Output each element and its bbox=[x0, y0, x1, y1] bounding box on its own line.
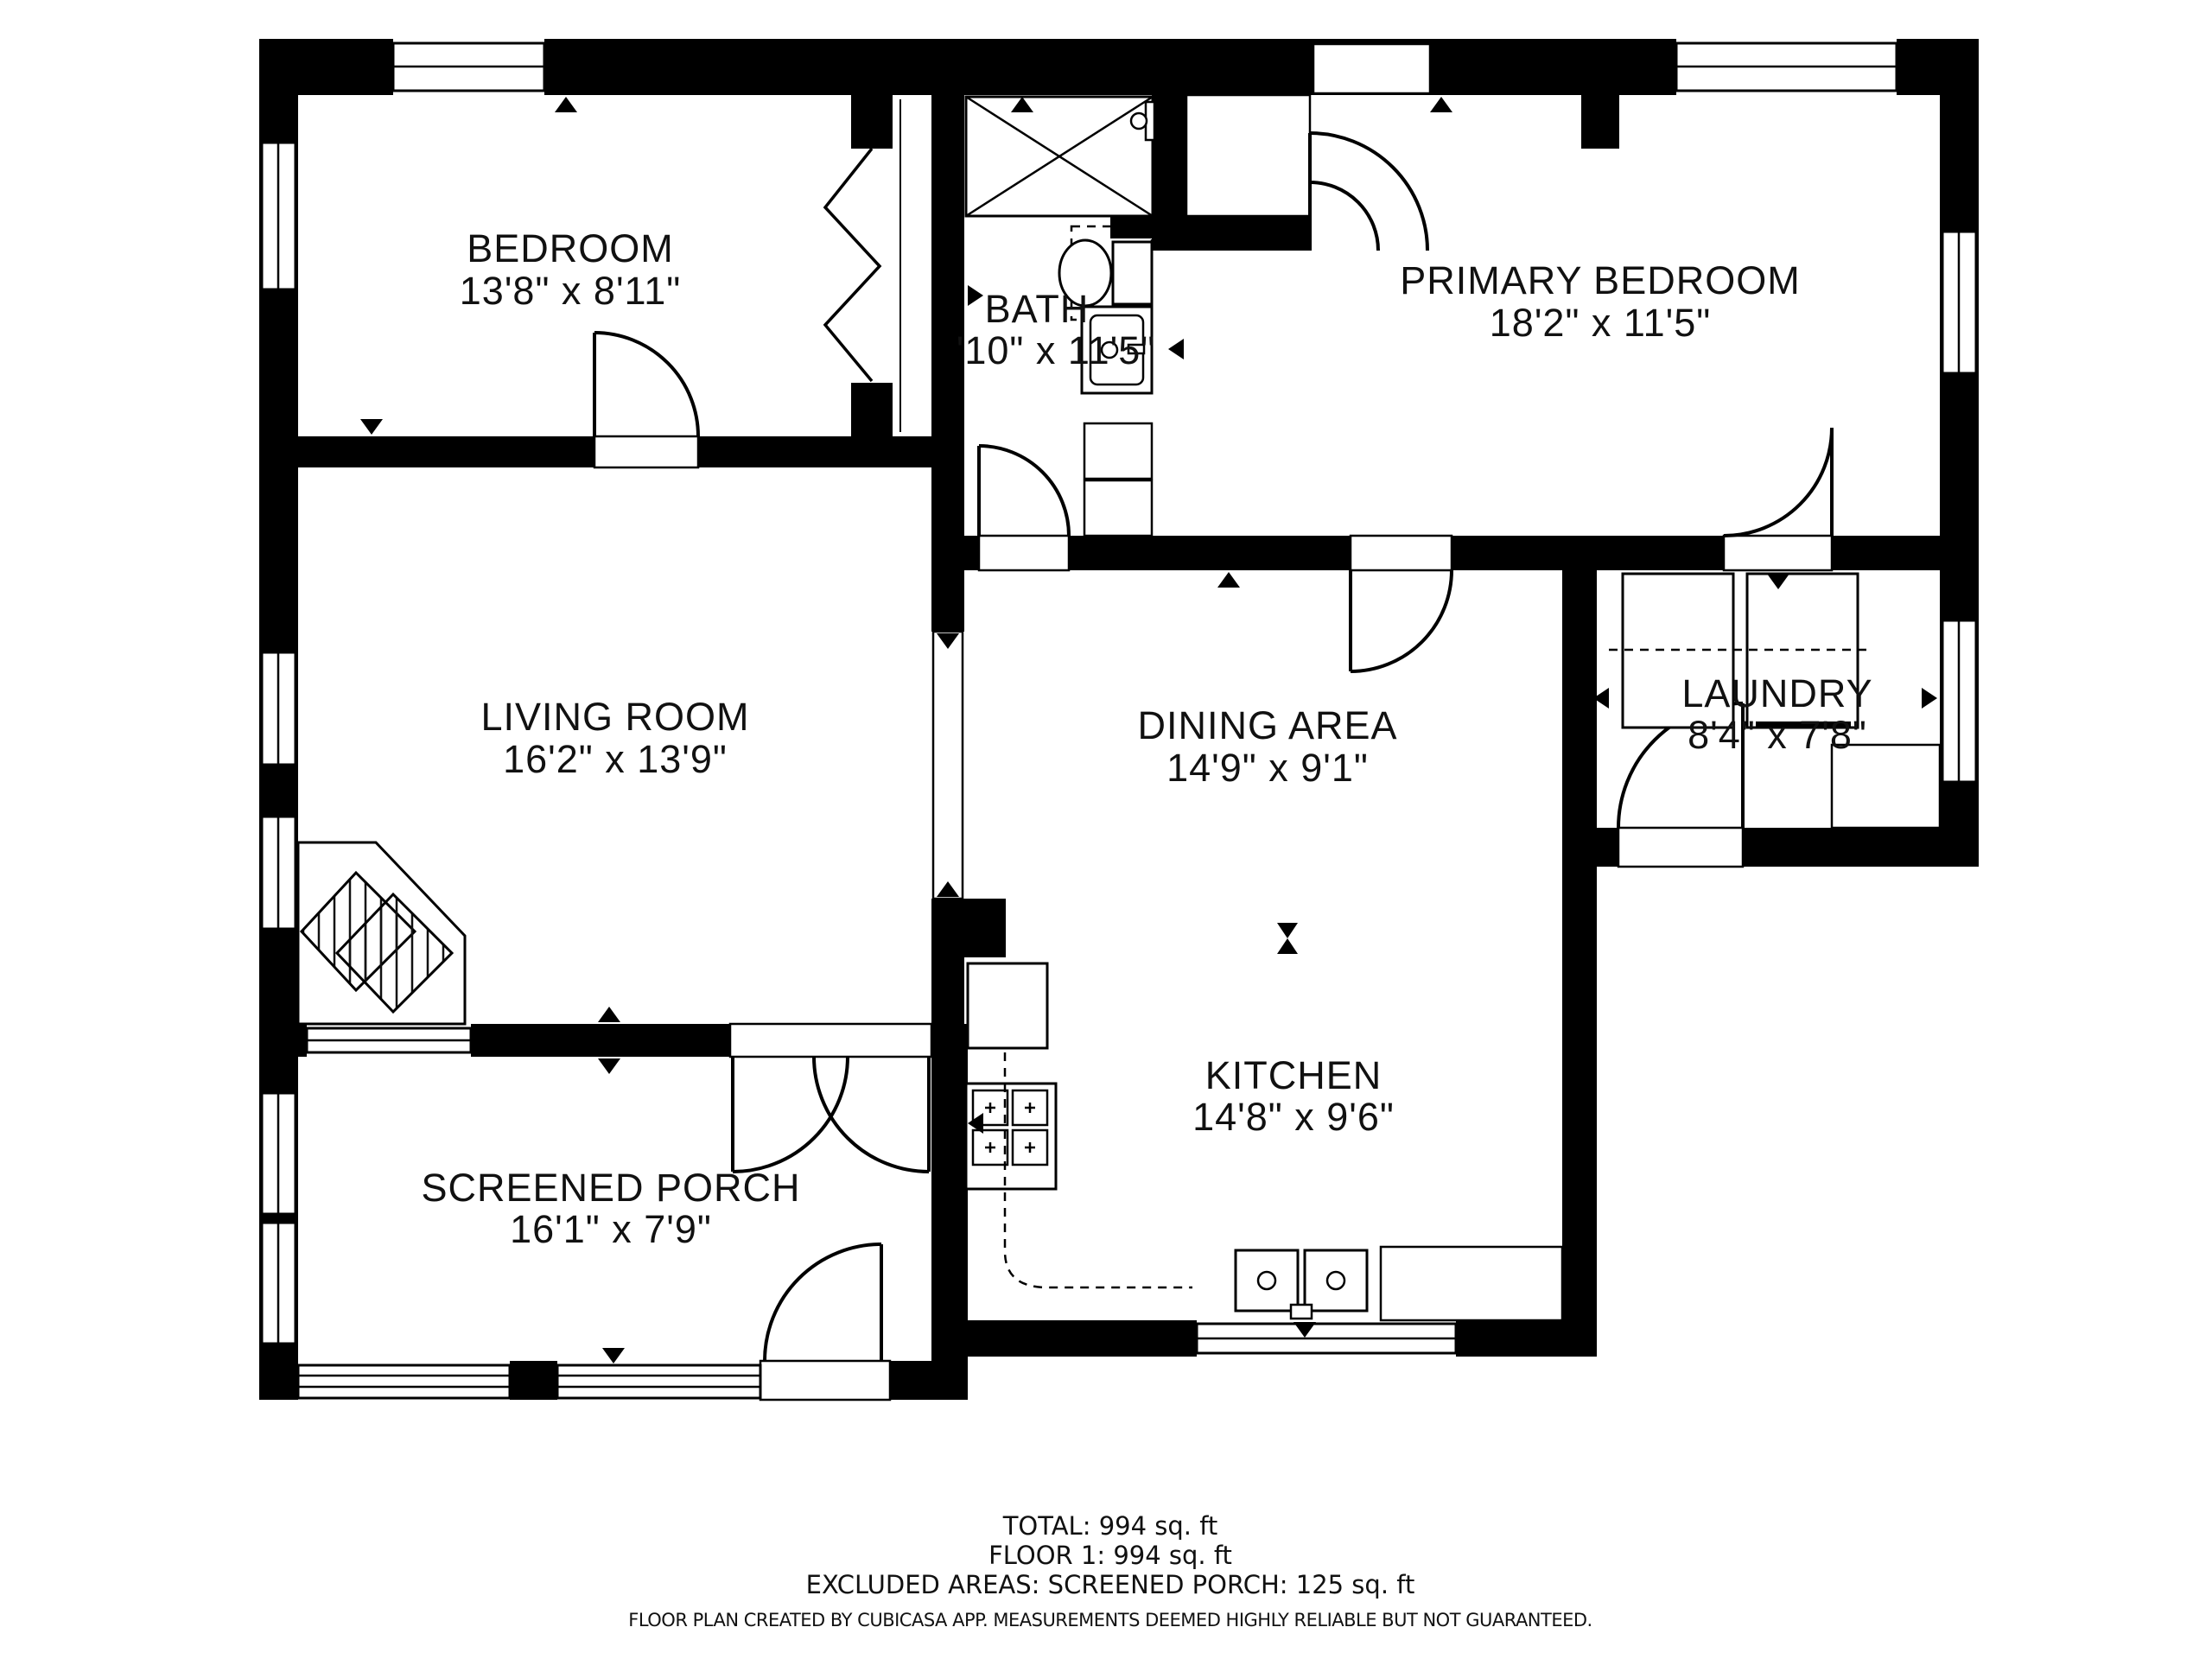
shower-fixture bbox=[966, 97, 1154, 216]
bath-door bbox=[979, 446, 1069, 536]
screen-porch-bottom-2 bbox=[557, 1365, 760, 1398]
bedroom-closet-bifold-door bbox=[825, 99, 900, 432]
room-dims-living-room: 16'2" x 13'9" bbox=[503, 737, 728, 781]
window-porch-left-2 bbox=[262, 1223, 296, 1344]
room-dims-kitchen: 14'8" x 9'6" bbox=[1192, 1095, 1395, 1139]
closet-folding-door bbox=[1310, 133, 1427, 251]
room-dims-screened-porch: 16'1" x 7'9" bbox=[510, 1207, 712, 1251]
primary-closet bbox=[1186, 95, 1310, 216]
linen-shelves bbox=[1084, 423, 1152, 536]
room-dims-bedroom: 13'8" x 8'11" bbox=[460, 269, 681, 313]
summary-floor: FLOOR 1: 994 sq. ft bbox=[988, 1541, 1232, 1570]
room-dims-dining-area: 14'9" x 9'1" bbox=[1166, 746, 1369, 790]
window-porch-left-1 bbox=[262, 1093, 296, 1214]
floor-plan-page: BEDROOM 13'8" x 8'11" BATH '10" x 11'5" … bbox=[0, 0, 2212, 1659]
room-dims-primary-bedroom: 18'2" x 11'5" bbox=[1490, 301, 1711, 345]
area-summary: TOTAL: 994 sq. ft FLOOR 1: 994 sq. ft EX… bbox=[628, 1511, 1592, 1630]
room-label-screened-porch: SCREENED PORCH bbox=[421, 1166, 800, 1210]
porch-french-doors bbox=[733, 1057, 929, 1172]
window-living-left-1 bbox=[262, 652, 296, 765]
room-label-kitchen: KITCHEN bbox=[1205, 1053, 1382, 1097]
summary-excluded: EXCLUDED AREAS: SCREENED PORCH: 125 sq. … bbox=[806, 1570, 1415, 1599]
kitchen-counter-right bbox=[1381, 1247, 1562, 1320]
window-kitchen bbox=[1197, 1324, 1456, 1353]
bedroom-door bbox=[594, 333, 698, 436]
entry-door-recess bbox=[1313, 44, 1430, 93]
room-dims-laundry: 8'4" x 7'8" bbox=[1688, 713, 1867, 757]
porch-exterior-door bbox=[765, 1244, 881, 1361]
screen-porch-bottom-1 bbox=[298, 1365, 510, 1398]
fireplace-fixture bbox=[298, 842, 465, 1024]
kitchen-sink-fixture bbox=[1236, 1250, 1367, 1319]
fridge-fixture bbox=[968, 963, 1047, 1048]
window-primary-right bbox=[1942, 232, 1976, 373]
window-bedroom-top bbox=[393, 43, 544, 91]
room-label-primary-bedroom: PRIMARY BEDROOM bbox=[1400, 258, 1800, 302]
laundry-counter bbox=[1832, 745, 1940, 828]
window-living-left-2 bbox=[262, 817, 296, 929]
dining-marker-up bbox=[1277, 923, 1298, 938]
primary-bedroom-door bbox=[1724, 428, 1832, 536]
window-bedroom-left bbox=[262, 143, 296, 289]
room-dims-bath: '10" x 11'5" bbox=[957, 328, 1155, 372]
room-label-living-room: LIVING ROOM bbox=[480, 695, 749, 739]
window-laundry-right bbox=[1942, 620, 1976, 782]
screen-porch-top bbox=[307, 1028, 471, 1052]
stove-fixture bbox=[966, 1084, 1056, 1189]
room-label-bedroom: BEDROOM bbox=[467, 226, 674, 270]
floor-plan-canvas: BEDROOM 13'8" x 8'11" BATH '10" x 11'5" … bbox=[0, 0, 2212, 1659]
hall-dining-door bbox=[1351, 570, 1452, 671]
dining-marker-down bbox=[1277, 938, 1298, 954]
cased-opening bbox=[933, 632, 963, 899]
room-label-laundry: LAUNDRY bbox=[1681, 671, 1872, 715]
window-primary-top bbox=[1676, 43, 1897, 91]
room-label-bath: BATH bbox=[985, 287, 1090, 331]
room-label-dining-area: DINING AREA bbox=[1137, 703, 1397, 747]
disclaimer-text: FLOOR PLAN CREATED BY CUBICASA APP. MEAS… bbox=[628, 1610, 1592, 1630]
summary-total: TOTAL: 994 sq. ft bbox=[1002, 1511, 1218, 1541]
